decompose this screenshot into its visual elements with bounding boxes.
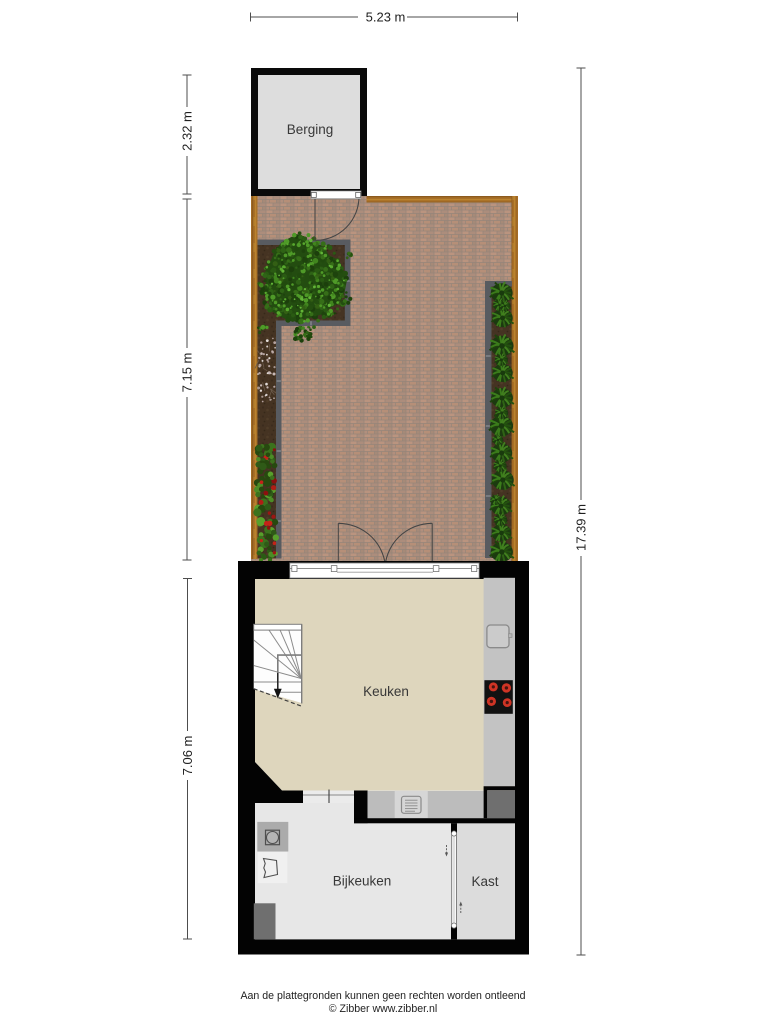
svg-text:Keuken: Keuken: [363, 684, 409, 699]
svg-text:2.32 m: 2.32 m: [180, 111, 195, 151]
svg-text:7.06 m: 7.06 m: [180, 736, 195, 776]
svg-text:Kast: Kast: [471, 874, 498, 889]
svg-text:© Zibber www.zibber.nl: © Zibber www.zibber.nl: [329, 1003, 438, 1015]
svg-text:Aan de plattegronden kunnen ge: Aan de plattegronden kunnen geen rechten…: [240, 990, 525, 1002]
svg-text:7.15 m: 7.15 m: [180, 353, 195, 393]
svg-text:17.39 m: 17.39 m: [574, 504, 589, 551]
svg-text:Bijkeuken: Bijkeuken: [333, 874, 392, 889]
svg-text:5.23 m: 5.23 m: [366, 10, 406, 25]
svg-text:Berging: Berging: [287, 122, 334, 137]
